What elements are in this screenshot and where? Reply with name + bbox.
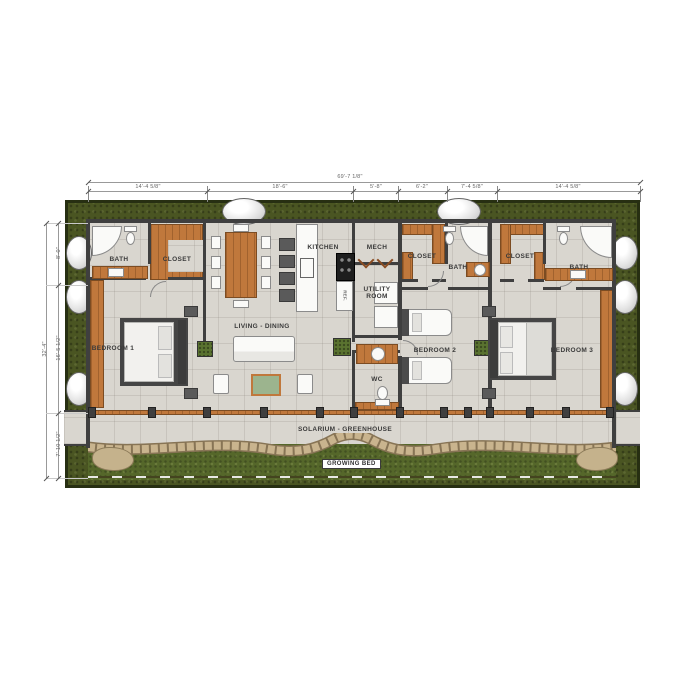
pillow xyxy=(158,354,172,378)
toilet-icon xyxy=(445,232,454,245)
dining-chair xyxy=(261,236,271,249)
refrigerator-label: REF. xyxy=(342,284,349,308)
dim-tick xyxy=(88,186,89,202)
toilet-icon xyxy=(126,232,135,245)
toilet-icon xyxy=(377,386,388,400)
dining-chair xyxy=(211,256,221,269)
floor-plan-drawing: REF. BATH CLOSET BEDROOM 1 LIVING - DINI… xyxy=(0,0,700,700)
dining-chair xyxy=(261,256,271,269)
rock-pile-right xyxy=(576,447,618,471)
room-label-bath-mid: BATH xyxy=(433,264,483,271)
post xyxy=(396,407,404,418)
room-label-utility: UTILITY ROOM xyxy=(358,286,396,300)
greenhouse-glazing-line xyxy=(88,476,616,478)
wall xyxy=(500,279,514,282)
headboard xyxy=(178,320,186,384)
post xyxy=(148,407,156,418)
dim-left-seg: 16'-5 1/2" xyxy=(56,333,62,363)
sink-icon xyxy=(108,268,124,277)
room-label-bath-left: BATH xyxy=(94,256,144,263)
dim-extension xyxy=(46,223,88,224)
room-label-living-dining: LIVING - DINING xyxy=(222,323,302,330)
nightstand xyxy=(482,388,496,399)
wall xyxy=(148,222,151,264)
post xyxy=(562,407,570,418)
room-label-closet-left: CLOSET xyxy=(152,256,202,263)
wall xyxy=(448,287,490,290)
room-label-kitchen: KITCHEN xyxy=(298,244,348,251)
post xyxy=(464,407,472,418)
room-label-bath-right: BATH xyxy=(554,264,604,271)
dim-top-overall: 69'-7 1/8" xyxy=(300,174,400,180)
wall xyxy=(86,219,616,223)
post xyxy=(486,407,494,418)
wall xyxy=(402,279,418,282)
post xyxy=(88,407,96,418)
pillow xyxy=(500,326,513,348)
dim-extension xyxy=(46,285,88,286)
dim-left-overall: 32'-4" xyxy=(42,329,48,369)
wall xyxy=(543,287,561,290)
cabinet-block xyxy=(279,289,295,302)
room-label-bedroom2: BEDROOM 2 xyxy=(405,347,465,354)
nightstand xyxy=(482,306,496,317)
dining-table xyxy=(225,232,257,298)
dim-tick xyxy=(640,186,641,202)
headboard xyxy=(490,320,498,378)
post xyxy=(260,407,268,418)
dim-extension xyxy=(46,413,88,414)
sofa xyxy=(233,336,295,362)
post xyxy=(526,407,534,418)
twin-bed xyxy=(402,309,452,336)
dim-top-seg: 18'-6" xyxy=(240,184,320,190)
wall xyxy=(402,287,428,290)
cabinet-block xyxy=(279,272,295,285)
toilet-icon xyxy=(559,232,568,245)
nightstand xyxy=(184,306,198,317)
range-icon xyxy=(336,253,355,281)
pillow xyxy=(412,361,422,380)
room-label-wc: WC xyxy=(357,376,397,383)
growing-bed-tag: GROWING BED xyxy=(322,459,381,469)
coffee-table xyxy=(251,374,281,396)
dining-chair xyxy=(233,224,249,232)
wall xyxy=(203,222,206,344)
room-label-closet-mid: CLOSET xyxy=(397,253,447,260)
wall xyxy=(528,279,544,282)
dim-top-seg: 14'-4 5/8" xyxy=(528,184,608,190)
nightstand xyxy=(184,388,198,399)
sink-icon xyxy=(570,270,586,279)
stone-scallop-wall xyxy=(88,433,616,461)
side-exit-right xyxy=(614,410,640,446)
wall xyxy=(352,335,400,338)
post xyxy=(316,407,324,418)
planter-icon xyxy=(197,341,213,357)
pillow xyxy=(158,326,172,350)
toilet-icon xyxy=(375,399,390,406)
headboard xyxy=(402,309,409,336)
wall xyxy=(352,350,355,410)
dim-line xyxy=(88,182,640,183)
armchair xyxy=(297,374,313,394)
wall xyxy=(576,287,614,290)
pillow xyxy=(412,313,422,332)
room-label-mech: MECH xyxy=(357,244,397,251)
room-label-bedroom1: BEDROOM 1 xyxy=(83,345,143,352)
dim-top-seg: 14'-4 5/8" xyxy=(108,184,188,190)
dining-chair xyxy=(211,236,221,249)
dining-chair xyxy=(261,276,271,289)
room-label-bedroom3: BEDROOM 3 xyxy=(542,347,602,354)
rock-pile-left xyxy=(92,447,134,471)
dim-tick xyxy=(638,180,644,186)
dim-line xyxy=(88,191,640,192)
post xyxy=(440,407,448,418)
dim-top-seg: 7'-4 5/8" xyxy=(442,184,502,190)
dryer-icon xyxy=(374,306,398,328)
dining-chair xyxy=(233,300,249,308)
dim-tick xyxy=(207,186,208,202)
sink-icon xyxy=(371,347,385,361)
wood-floor-strip xyxy=(90,280,104,408)
room-label-closet-right: CLOSET xyxy=(495,253,545,260)
dining-chair xyxy=(211,276,221,289)
pillow xyxy=(500,352,513,374)
kitchen-sink-icon xyxy=(300,258,314,278)
room-label-solarium: SOLARIUM - GREENHOUSE xyxy=(285,426,405,433)
wall xyxy=(168,277,205,280)
dim-left-seg: 8'-0" xyxy=(56,238,62,268)
cabinet-block xyxy=(279,238,295,251)
post xyxy=(203,407,211,418)
headboard xyxy=(402,357,409,384)
dim-extension xyxy=(46,478,88,479)
armchair xyxy=(213,374,229,394)
post xyxy=(606,407,614,418)
planter-icon xyxy=(333,338,351,356)
twin-bed xyxy=(402,357,452,384)
dim-left-seg: 7'-10 1/2" xyxy=(56,429,62,459)
cabinet-block xyxy=(279,255,295,268)
post xyxy=(350,407,358,418)
